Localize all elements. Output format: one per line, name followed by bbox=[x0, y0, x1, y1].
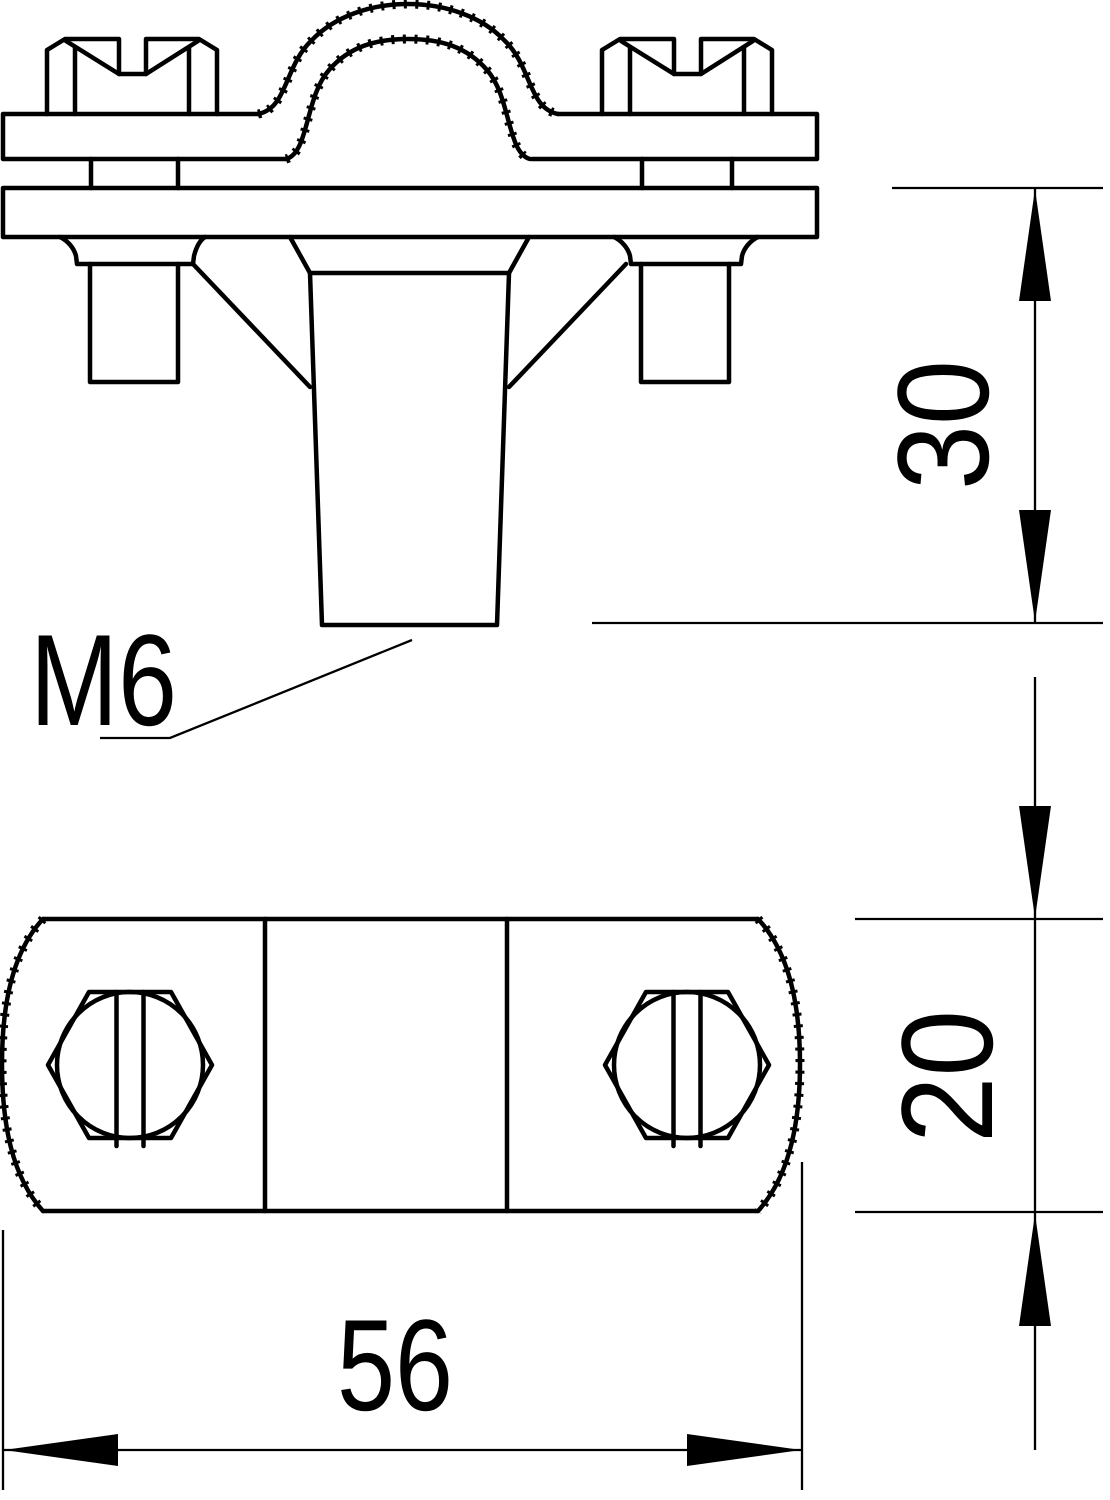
arrowhead-up bbox=[1019, 189, 1051, 301]
left-screw-boss bbox=[60, 237, 205, 382]
left-hex-screw-head bbox=[48, 992, 212, 1146]
thread-size-label: M6 bbox=[30, 607, 177, 753]
arrowhead-down bbox=[1019, 510, 1051, 622]
right-hex-screw-head bbox=[605, 992, 769, 1146]
plan-view bbox=[2, 919, 800, 1211]
dimension-20: 20 bbox=[855, 677, 1103, 1450]
dim-20-label: 20 bbox=[874, 1010, 1020, 1143]
plan-body bbox=[2, 919, 800, 1211]
drawing-canvas: 30 20 56 M6 bbox=[0, 0, 1110, 1500]
arrowhead-left bbox=[4, 1434, 118, 1466]
left-screw-head bbox=[47, 39, 217, 114]
arrowhead-down bbox=[1019, 806, 1051, 918]
lower-plate bbox=[3, 188, 817, 237]
right-screw-boss bbox=[614, 237, 758, 382]
m6-annotation: M6 bbox=[30, 607, 412, 753]
technical-drawing: 30 20 56 M6 bbox=[0, 0, 1110, 1500]
dim-56-label: 56 bbox=[337, 1292, 453, 1438]
center-stud bbox=[193, 237, 626, 625]
dimension-30: 30 bbox=[592, 188, 1103, 623]
conductor-saddle bbox=[258, 4, 558, 159]
dim-30-label: 30 bbox=[870, 360, 1016, 490]
arrowhead-right bbox=[687, 1434, 801, 1466]
right-screw-head bbox=[602, 39, 772, 114]
front-view bbox=[3, 4, 817, 625]
spacer-blocks bbox=[91, 159, 732, 188]
upper-plate bbox=[3, 114, 817, 159]
arrowhead-up bbox=[1019, 1214, 1051, 1326]
